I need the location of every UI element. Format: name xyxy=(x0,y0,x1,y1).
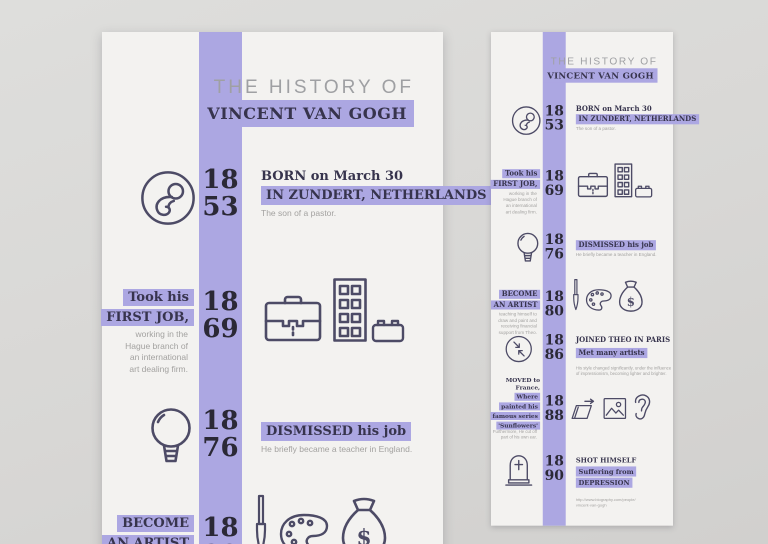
year-label-1876: 1876 xyxy=(199,408,242,462)
year-label-1869: 1869 xyxy=(199,289,242,343)
entry-highlight: Took his FIRST JOB, xyxy=(101,288,194,328)
entry-note: working in the Hague branch of an intern… xyxy=(125,329,188,375)
poster-title-name: VINCENT VAN GOGH xyxy=(200,100,414,127)
paintbrush-icon xyxy=(253,494,269,544)
entry-heading: BORN on March 30 xyxy=(576,105,652,114)
ear-icon xyxy=(631,393,651,422)
design-preview-stage: THE HISTORY OF VINCENT VAN GOGH 1853 BOR… xyxy=(0,0,768,544)
tombstone-icon xyxy=(504,454,533,488)
lightbulb-icon xyxy=(149,407,193,473)
svg-text:$: $ xyxy=(356,525,371,544)
palette-icon xyxy=(585,289,612,311)
building-icon xyxy=(614,163,633,198)
briefcase-icon xyxy=(577,172,608,198)
source-note: http://www.biography.com/people/ vincent… xyxy=(576,497,636,508)
entry-highlight: DISMISSED his job xyxy=(576,240,656,250)
entry-note: teaching himself to draw and paint and r… xyxy=(498,311,537,336)
entry-highlight: Met many artists xyxy=(576,348,647,358)
year-label-1853: 1853 xyxy=(199,167,242,221)
entry-note: working in the Hague branch of an intern… xyxy=(503,191,537,216)
entry-heading: MOVED to France, Where painted his famou… xyxy=(490,377,540,430)
palette-icon xyxy=(279,513,329,544)
poster-title-prefix: THE HISTORY OF xyxy=(214,77,414,99)
entry-highlight: DISMISSED his job xyxy=(261,422,411,441)
paintbrush-icon xyxy=(572,279,581,312)
luggage-icon xyxy=(371,316,405,343)
entry-note: The son of a pastor. xyxy=(261,208,336,219)
poster-preview-large[interactable]: THE HISTORY OF VINCENT VAN GOGH 1853 BOR… xyxy=(102,32,443,544)
luggage-icon xyxy=(635,184,653,198)
year-label-1888: 1888 xyxy=(543,394,566,423)
poster-preview-small[interactable]: THE HISTORY OF VINCENT VAN GOGH 1853 BOR… xyxy=(491,32,673,526)
move-folder-icon xyxy=(570,397,598,419)
picture-icon xyxy=(603,398,626,420)
entry-highlight: IN ZUNDERT, NETHERLANDS xyxy=(261,186,492,205)
entry-highlight: BECOME AN ARTIST xyxy=(102,514,194,544)
entry-heading: BORN on March 30 xyxy=(261,169,403,185)
meeting-arrows-icon xyxy=(505,335,533,363)
baby-icon xyxy=(139,169,197,227)
poster-title-prefix: THE HISTORY OF xyxy=(551,56,658,68)
entry-highlight: Suffering from DEPRESSION xyxy=(576,466,637,487)
svg-text:$: $ xyxy=(627,295,635,309)
entry-heading: JOINED THEO IN PARIS xyxy=(576,336,670,345)
entry-note: He briefly became a teacher in England. xyxy=(576,252,657,258)
year-label-1853: 1853 xyxy=(543,104,566,133)
entry-note: Furthermore, He cut off part of his own … xyxy=(493,429,537,440)
entry-note: The son of a pastor. xyxy=(576,126,616,132)
year-label-1890: 1890 xyxy=(543,454,566,483)
year-label-1886: 1886 xyxy=(543,334,566,363)
building-icon xyxy=(332,277,368,343)
poster-title-name: VINCENT VAN GOGH xyxy=(543,68,657,82)
entry-highlight: IN ZUNDERT, NETHERLANDS xyxy=(576,114,699,124)
entry-highlight: BECOME AN ARTIST xyxy=(491,289,540,310)
year-label-1880: 1880 xyxy=(543,290,566,319)
poster: THE HISTORY OF VINCENT VAN GOGH 1853 BOR… xyxy=(102,32,443,544)
poster: THE HISTORY OF VINCENT VAN GOGH 1853 BOR… xyxy=(491,32,673,526)
entry-note: His style changed significantly, under t… xyxy=(576,366,671,377)
entry-heading: SHOT HIMSELF xyxy=(576,456,636,465)
baby-icon xyxy=(511,105,542,136)
money-bag-icon: $ xyxy=(619,280,644,312)
year-label-1869: 1869 xyxy=(543,169,566,198)
entry-note: He briefly became a teacher in England. xyxy=(261,444,412,455)
lightbulb-icon xyxy=(516,232,539,267)
briefcase-icon xyxy=(264,294,322,342)
year-label-1880: 1880 xyxy=(199,515,242,544)
entry-highlight: Took his FIRST JOB, xyxy=(491,169,540,190)
money-bag-icon: $ xyxy=(341,497,387,544)
year-label-1876: 1876 xyxy=(543,233,566,262)
